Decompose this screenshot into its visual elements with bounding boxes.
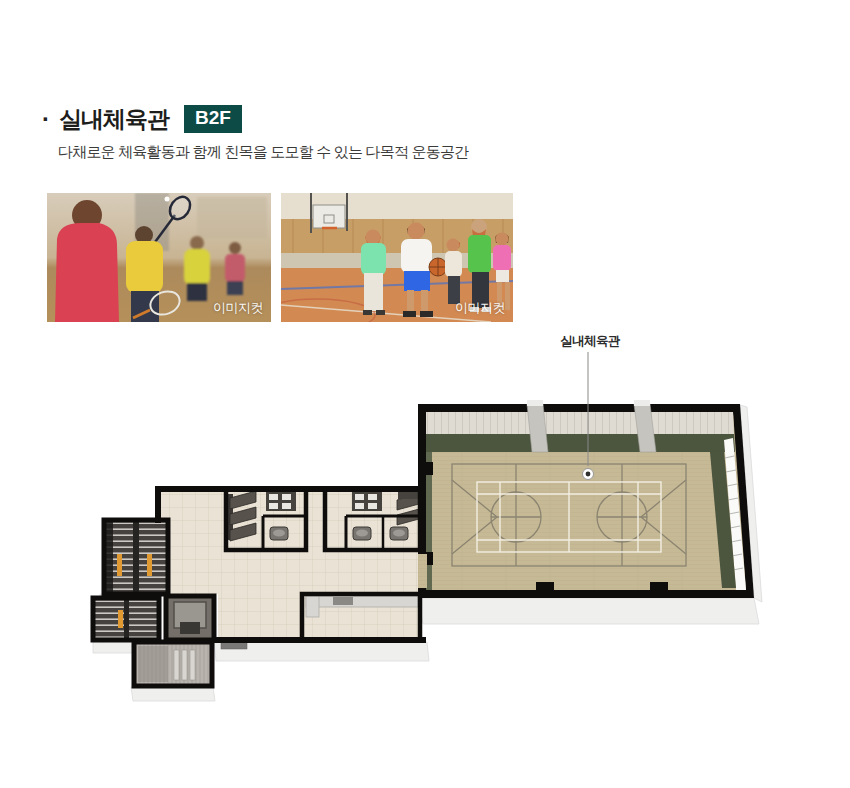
multipurpose-room xyxy=(302,594,420,640)
page: · 실내체육관 B2F 다채로운 체육활동과 함께 친목을 도모할 수 있는 다… xyxy=(0,0,850,788)
floorplan-label: 실내체육관 xyxy=(560,334,621,348)
elevator xyxy=(168,598,212,638)
staircase-lower xyxy=(95,600,157,638)
floorplan: 실내체육관 xyxy=(0,0,850,788)
gym-green-wall-top xyxy=(426,434,735,452)
marker-dot-center xyxy=(586,472,591,477)
utility-room xyxy=(136,644,210,684)
gym-ceiling-strip xyxy=(426,412,734,434)
gym-door-opening xyxy=(418,554,427,588)
gymnasium xyxy=(418,400,754,598)
staircase-upper xyxy=(106,522,166,592)
